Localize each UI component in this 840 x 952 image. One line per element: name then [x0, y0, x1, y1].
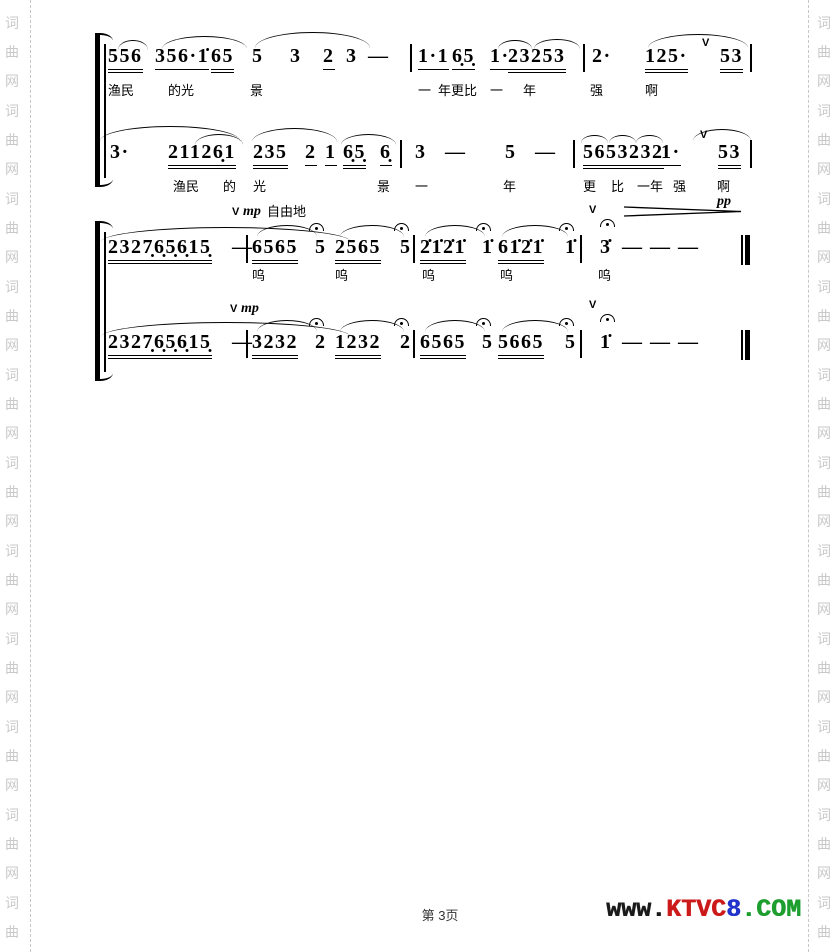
- dash-rest: —: [650, 237, 672, 260]
- watermark-char: 曲: [5, 45, 19, 59]
- watermark-char: 网: [5, 866, 19, 880]
- watermark-char: 网: [817, 514, 831, 528]
- breath-mark: V: [700, 130, 707, 141]
- watermark-right: 词曲网词曲网词曲网词曲网词曲网词曲网词曲网词曲网词曲网词曲网词曲网: [817, 0, 837, 952]
- watermark-char: 曲: [817, 309, 831, 323]
- watermark-char: 网: [5, 426, 19, 440]
- fermata-icon: [600, 314, 615, 322]
- barline: [580, 330, 582, 358]
- watermark-char: 词: [5, 544, 19, 558]
- watermark-char: 曲: [5, 573, 19, 587]
- final-barline: [745, 235, 750, 265]
- barline: [580, 235, 582, 263]
- lyric: 光: [253, 180, 266, 193]
- note-group: 61̇2̇1̇: [498, 237, 544, 261]
- note-group: 23253: [508, 46, 566, 70]
- dash-rest: —: [232, 332, 254, 355]
- note-group: 2565: [335, 237, 381, 261]
- watermark-char: 曲: [817, 573, 831, 587]
- watermark-char: 曲: [5, 309, 19, 323]
- breath-mark: V: [232, 207, 239, 218]
- watermark-char: 网: [817, 162, 831, 176]
- watermark-char: 词: [817, 896, 831, 910]
- watermark-char: 词: [5, 456, 19, 470]
- note-group: 5665: [498, 332, 544, 356]
- watermark-char: 词: [5, 632, 19, 646]
- watermark-char: 网: [5, 514, 19, 528]
- watermark-char: 曲: [817, 749, 831, 763]
- watermark-char: 曲: [817, 661, 831, 675]
- lyric: 的光: [168, 84, 194, 97]
- watermark-char: 曲: [5, 133, 19, 147]
- watermark-char: 词: [817, 16, 831, 30]
- lyric: 渔民: [173, 180, 199, 193]
- note-group: 5: [252, 46, 264, 69]
- watermark-char: 网: [5, 690, 19, 704]
- lyric: 年: [503, 180, 516, 193]
- watermark-char: 词: [817, 192, 831, 206]
- watermark-char: 曲: [817, 925, 831, 939]
- watermark-char: 词: [817, 544, 831, 558]
- watermark-char: 词: [5, 896, 19, 910]
- music-line-3: V mp 自由地 pp V 2327̣6̣5̣6̣15̣ — 6565 5 25…: [95, 205, 775, 290]
- page-number: 第 3页: [385, 905, 495, 924]
- fermata-icon: [309, 318, 324, 326]
- note-group: 2·: [592, 46, 612, 69]
- note-group: 556: [108, 46, 143, 70]
- music-line-1: 556 356·1̇ 65 5 3 2 3 — 1·1 6̣5̣ 1· 2325…: [95, 38, 775, 110]
- note-group: 3: [290, 46, 302, 69]
- note-group: 1: [325, 142, 337, 166]
- note-group: 3: [415, 142, 427, 165]
- note-group: 2: [315, 332, 327, 355]
- dynamic-mp: mp: [241, 302, 259, 316]
- tempo-marking: 自由地: [267, 205, 306, 218]
- note-group: 65: [211, 46, 234, 70]
- music-line-4: V mp V 2327̣6̣5̣6̣15̣ — 3232 2 1232 2 65…: [95, 298, 775, 378]
- watermark-char: 网: [817, 778, 831, 792]
- note-group: 3̇: [600, 237, 612, 260]
- watermark-char: 词: [5, 720, 19, 734]
- lyric: 一年: [637, 180, 663, 193]
- lyric: 强: [590, 84, 603, 97]
- watermark-char: 词: [817, 720, 831, 734]
- music-line-2: 3· 21126̣1 235 2 1 6̣5̣ 6̣ 3 — 5 — 56532…: [95, 132, 775, 204]
- watermark-char: 曲: [5, 221, 19, 235]
- watermark-char: 词: [5, 192, 19, 206]
- lyric: 啊: [645, 84, 658, 97]
- note-group: 5: [505, 142, 517, 165]
- dash-rest: —: [622, 237, 644, 260]
- site-logo-com: .COM: [741, 895, 801, 924]
- watermark-char: 网: [5, 778, 19, 792]
- note-group: 1·: [661, 142, 681, 166]
- note-group: 6565: [420, 332, 466, 356]
- note-group: 1·1: [418, 46, 449, 70]
- barline: [573, 140, 575, 168]
- watermark-char: 词: [5, 280, 19, 294]
- note-group: 2327̣6̣5̣6̣15̣: [108, 237, 212, 261]
- lyric: 呜: [252, 269, 265, 282]
- watermark-char: 网: [5, 338, 19, 352]
- lyric: 比: [611, 180, 624, 193]
- watermark-char: 曲: [5, 925, 19, 939]
- watermark-char: 网: [817, 866, 831, 880]
- note-group: 235: [253, 142, 288, 166]
- site-logo-8: 8: [726, 895, 741, 924]
- note-group: 2: [305, 142, 317, 166]
- watermark-char: 网: [5, 74, 19, 88]
- fermata-icon: [309, 223, 324, 231]
- barline: [410, 44, 412, 72]
- breath-mark: V: [702, 38, 709, 49]
- watermark-char: 网: [817, 602, 831, 616]
- fermata-icon: [600, 219, 615, 227]
- watermark-char: 曲: [5, 485, 19, 499]
- watermark-char: 词: [817, 808, 831, 822]
- watermark-char: 词: [5, 368, 19, 382]
- fermata-icon: [559, 318, 574, 326]
- lyric: 景: [250, 84, 263, 97]
- barline: [246, 235, 248, 263]
- watermark-char: 网: [5, 602, 19, 616]
- watermark-dashed-line-left: [30, 0, 31, 952]
- dynamic-pp: pp: [717, 195, 731, 209]
- watermark-char: 曲: [817, 221, 831, 235]
- barline: [246, 330, 248, 358]
- note-group: 6̣5̣: [343, 142, 366, 166]
- fermata-icon: [394, 223, 409, 231]
- watermark-char: 词: [817, 632, 831, 646]
- note-group: 6̣5̣: [452, 46, 475, 70]
- lyric: 一: [418, 84, 431, 97]
- watermark-char: 词: [817, 456, 831, 470]
- watermark-char: 词: [817, 104, 831, 118]
- note-group: 1̇: [600, 332, 612, 355]
- dash-rest: —: [535, 142, 557, 165]
- lyric: 的: [223, 180, 236, 193]
- note-group: 5: [565, 332, 577, 355]
- fermata-icon: [476, 223, 491, 231]
- watermark-char: 词: [5, 16, 19, 30]
- watermark-char: 曲: [817, 133, 831, 147]
- note-group: 1232: [335, 332, 381, 356]
- note-group: 53: [720, 46, 743, 70]
- note-group: 2: [323, 46, 335, 70]
- sheet-music-page: 词曲网词曲网词曲网词曲网词曲网词曲网词曲网词曲网词曲网词曲网词曲网 词曲网词曲网…: [0, 0, 840, 952]
- watermark-char: 曲: [817, 45, 831, 59]
- fermata-icon: [394, 318, 409, 326]
- note-group: 5653232: [583, 142, 664, 166]
- lyric: 年: [523, 84, 536, 97]
- watermark-char: 曲: [817, 485, 831, 499]
- watermark-char: 曲: [817, 397, 831, 411]
- breath-mark: V: [589, 205, 596, 216]
- lyric: 强: [673, 180, 686, 193]
- watermark-char: 网: [817, 426, 831, 440]
- note-group: 6565: [252, 237, 298, 261]
- breath-mark: V: [230, 304, 237, 315]
- lyric: 呜: [335, 269, 348, 282]
- lyric: 呜: [422, 269, 435, 282]
- note-group: 2̇1̇2̇1̇: [420, 237, 466, 261]
- lyric: 景: [377, 180, 390, 193]
- barline: [750, 44, 752, 72]
- lyric: 呜: [500, 269, 513, 282]
- site-logo-www: www.: [606, 895, 666, 924]
- watermark-char: 曲: [817, 837, 831, 851]
- note-group: 5: [482, 332, 494, 355]
- watermark-char: 网: [817, 690, 831, 704]
- note-group: 1̇: [482, 237, 494, 260]
- dash-rest: —: [622, 332, 644, 355]
- note-group: 3232: [252, 332, 298, 356]
- note-group: 356·1̇: [155, 46, 209, 70]
- dash-rest: —: [445, 142, 467, 165]
- watermark-char: 词: [817, 280, 831, 294]
- dash-rest: —: [678, 237, 700, 260]
- watermark-char: 词: [5, 808, 19, 822]
- dash-rest: —: [650, 332, 672, 355]
- slur-icon: [252, 128, 337, 142]
- lyric: 一: [415, 180, 428, 193]
- watermark-char: 曲: [5, 749, 19, 763]
- barline: [750, 140, 752, 168]
- dash-rest: —: [678, 332, 700, 355]
- note-group: 2: [400, 332, 412, 355]
- watermark-left: 词曲网词曲网词曲网词曲网词曲网词曲网词曲网词曲网词曲网词曲网词曲网: [5, 0, 25, 952]
- watermark-char: 词: [817, 368, 831, 382]
- watermark-char: 曲: [5, 837, 19, 851]
- watermark-char: 网: [817, 74, 831, 88]
- barline: [583, 44, 585, 72]
- note-group: 3: [346, 46, 358, 69]
- lyric: 更: [583, 180, 596, 193]
- note-group: 2327̣6̣5̣6̣15̣: [108, 332, 212, 356]
- watermark-char: 网: [5, 250, 19, 264]
- barline: [413, 235, 415, 263]
- lyric: 啊: [717, 180, 730, 193]
- watermark-char: 曲: [5, 661, 19, 675]
- watermark-char: 曲: [5, 397, 19, 411]
- dash-rest: —: [232, 237, 254, 260]
- fermata-icon: [559, 223, 574, 231]
- lyric: 年更比: [438, 84, 477, 97]
- watermark-char: 网: [817, 338, 831, 352]
- barline: [400, 140, 402, 168]
- site-logo-ktvc: KTVC: [666, 895, 726, 924]
- watermark-char: 网: [5, 162, 19, 176]
- note-group: 5: [315, 237, 327, 260]
- note-group: 21126̣1: [168, 142, 236, 166]
- final-barline: [745, 330, 750, 360]
- watermark-char: 词: [5, 104, 19, 118]
- lyric: 呜: [598, 269, 611, 282]
- note-group: 1·: [490, 46, 510, 70]
- lyric: 一: [490, 84, 503, 97]
- fermata-icon: [476, 318, 491, 326]
- barline: [413, 330, 415, 358]
- note-group: 53: [718, 142, 741, 166]
- dash-rest: —: [368, 46, 390, 69]
- note-group: 5: [400, 237, 412, 260]
- note-group: 125·: [645, 46, 688, 70]
- site-logo-link[interactable]: www.KTVC8.COM: [606, 897, 801, 922]
- note-group: 1̇: [565, 237, 577, 260]
- dynamic-mp: mp: [243, 205, 261, 219]
- breath-mark: V: [589, 300, 596, 311]
- watermark-char: 网: [817, 250, 831, 264]
- watermark-dashed-line-right: [808, 0, 809, 952]
- note-group: 3·: [110, 142, 130, 165]
- lyric: 渔民: [108, 84, 134, 97]
- note-group: 6̣: [380, 142, 392, 166]
